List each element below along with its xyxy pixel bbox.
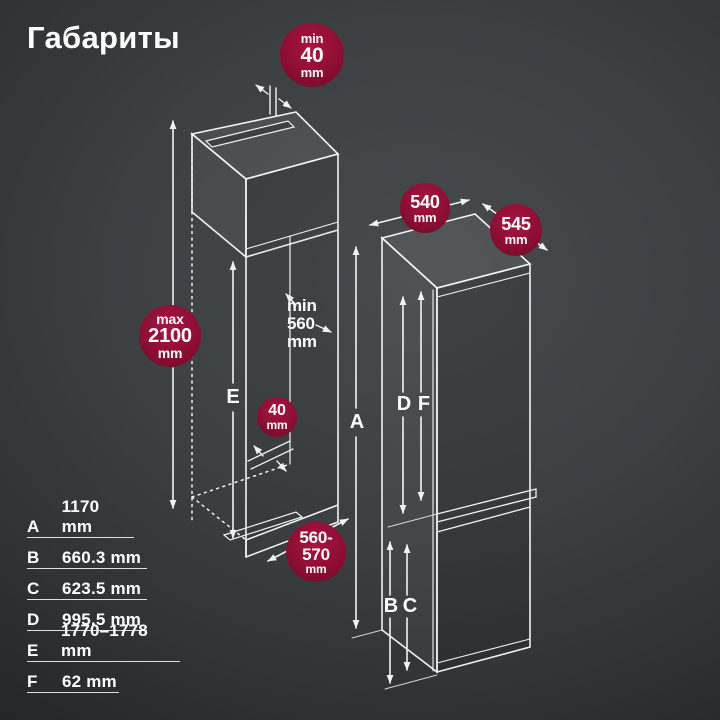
legend-value: 1770–1778 mm <box>61 621 180 661</box>
badge-text: 40 <box>268 403 285 419</box>
legend-value: 62 mm <box>62 672 117 692</box>
label-F: F <box>418 394 430 414</box>
legend-letter: D <box>27 610 62 630</box>
label-D: D <box>397 394 411 414</box>
legend-letter: E <box>27 641 61 661</box>
badge-text: 545 <box>501 215 530 233</box>
badge-text: max <box>156 312 183 326</box>
badge-text: mm <box>267 419 288 431</box>
label-B: B <box>384 596 398 616</box>
dimension-legend: A 1170 mm B 660.3 mm C 623.5 mm D 995.5 … <box>27 517 180 703</box>
fridge-door-face <box>437 264 530 672</box>
legend-letter: F <box>27 672 62 692</box>
badge-text: mm <box>301 66 324 79</box>
label-A: A <box>350 412 364 432</box>
label-C: C <box>403 596 417 616</box>
badge-text: 560- <box>299 529 332 546</box>
badge-text: mm <box>306 563 327 575</box>
label-E: E <box>226 387 239 407</box>
dimensions-diagram-page: Габариты <box>0 0 720 720</box>
badge-niche-depth: 560- 570 mm <box>286 522 346 582</box>
badge-text: mm <box>158 346 183 360</box>
annotation-text: 560 <box>287 315 317 333</box>
inner-min-depth-annotation: min 560 mm <box>287 297 317 351</box>
legend-row: E 1770–1778 mm <box>27 641 180 662</box>
badge-fridge-depth: 545 mm <box>490 204 542 256</box>
badge-text: mm <box>505 233 528 246</box>
legend-letter: C <box>27 579 62 599</box>
legend-letter: B <box>27 548 62 568</box>
niche-drawing <box>173 85 348 561</box>
legend-value: 660.3 mm <box>62 548 141 568</box>
niche-opening <box>246 230 338 540</box>
fridge-drawing <box>352 200 547 689</box>
badge-rear-bottom-gap: 40 mm <box>257 397 297 437</box>
legend-row: B 660.3 mm <box>27 548 147 569</box>
annotation-text: mm <box>287 333 317 351</box>
badge-text: 40 <box>301 45 324 66</box>
legend-row: F 62 mm <box>27 672 119 693</box>
legend-value: 623.5 mm <box>62 579 141 599</box>
badge-niche-max-height: max 2100 mm <box>139 305 201 367</box>
badge-text: mm <box>414 211 437 224</box>
badge-rear-top-gap: min 40 mm <box>280 23 344 87</box>
legend-value: 1170 mm <box>62 497 134 537</box>
legend-row: A 1170 mm <box>27 517 134 538</box>
legend-letter: A <box>27 517 62 537</box>
badge-fridge-width: 540 mm <box>400 183 450 233</box>
badge-text: 540 <box>410 193 439 211</box>
badge-text: 570 <box>302 546 330 563</box>
legend-row: C 623.5 mm <box>27 579 147 600</box>
rear-top-gap-detail <box>256 85 291 116</box>
badge-text: 2100 <box>148 326 192 346</box>
annotation-text: min <box>287 297 317 315</box>
badge-text: min <box>301 32 324 45</box>
